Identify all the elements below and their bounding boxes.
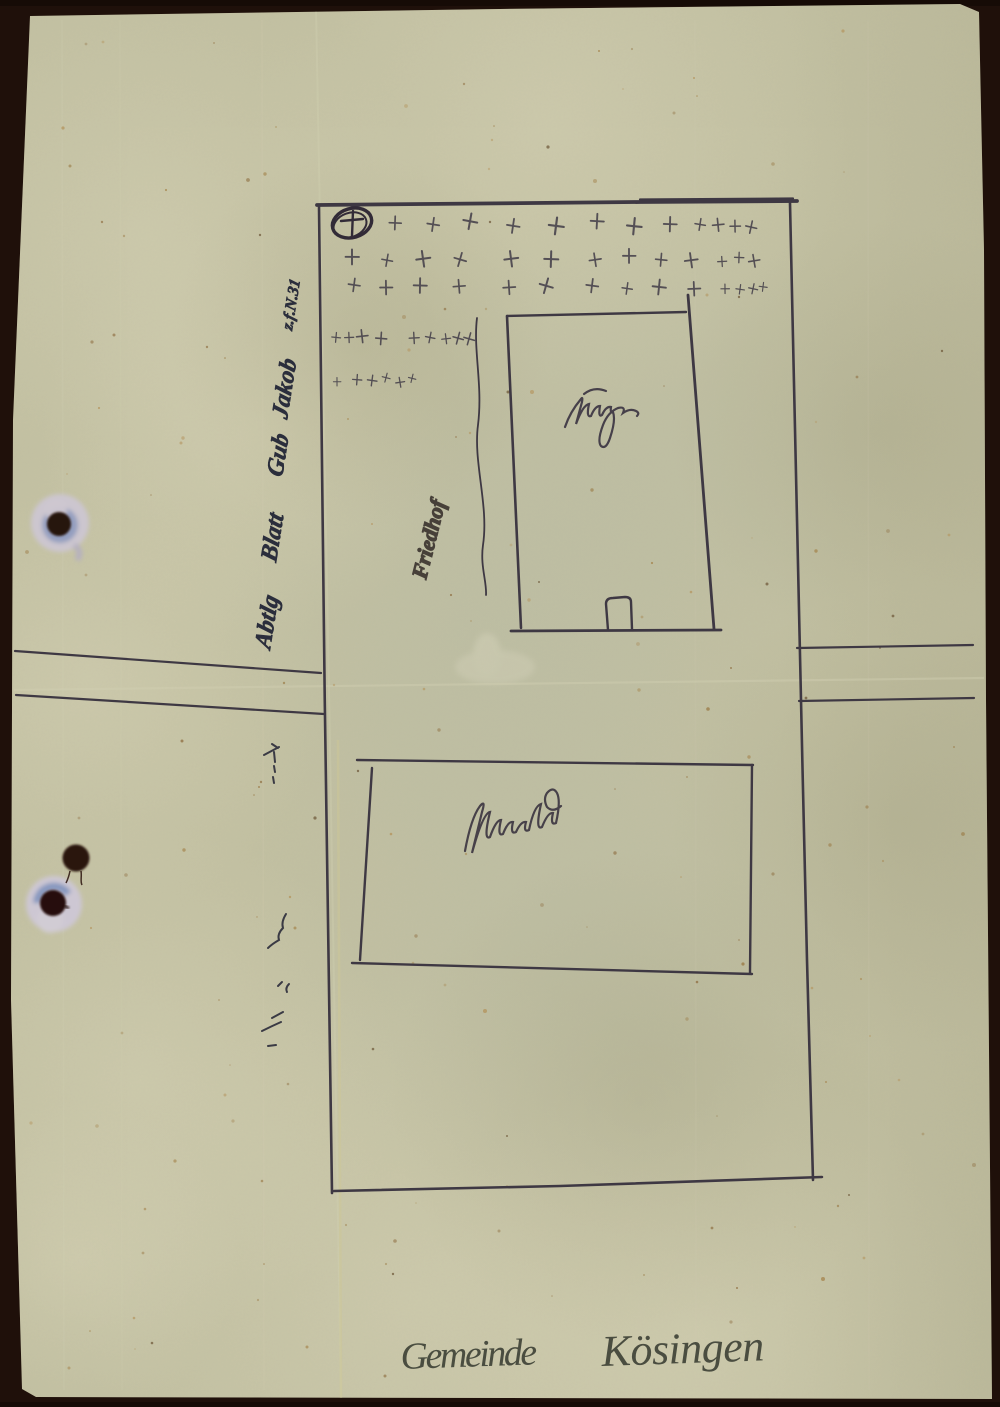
- svg-text:Gemeinde: Gemeinde: [400, 1331, 538, 1378]
- svg-text:Kösingen: Kösingen: [600, 1321, 765, 1376]
